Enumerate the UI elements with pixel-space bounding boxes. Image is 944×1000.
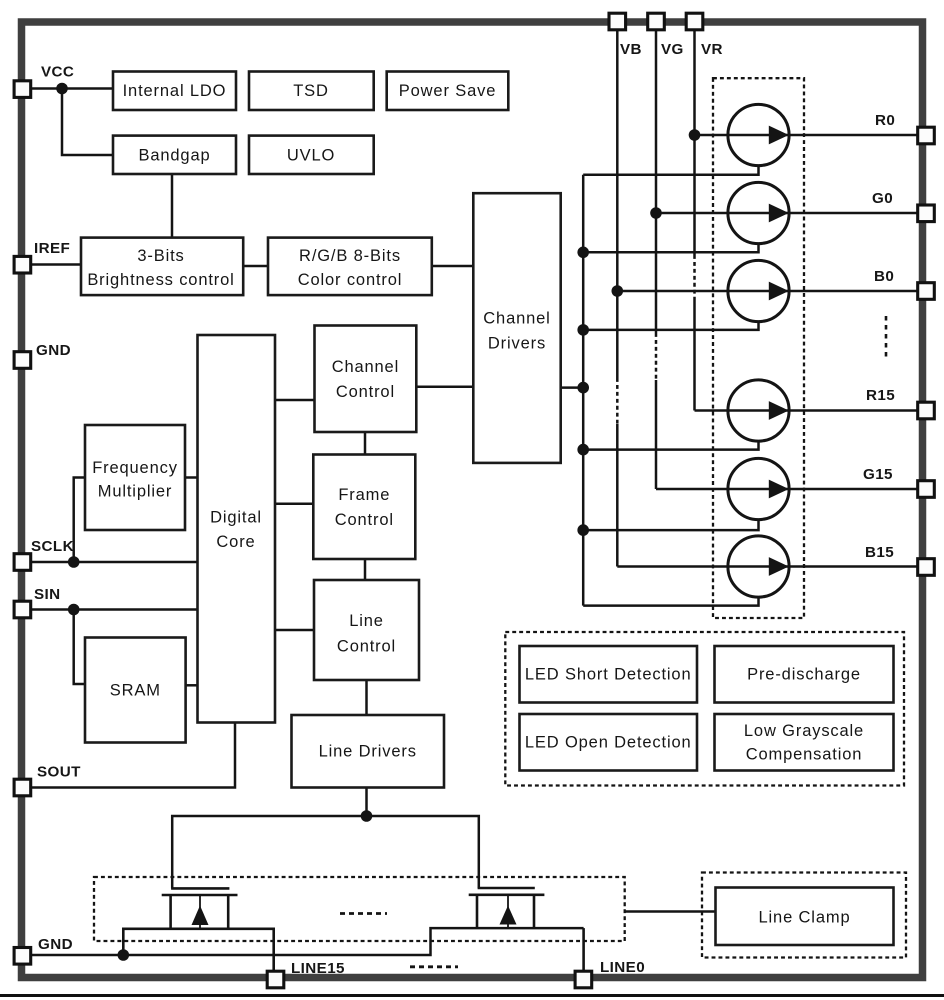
svg-text:LINE0: LINE0 [600, 959, 645, 976]
svg-text:TSD: TSD [293, 82, 329, 100]
svg-text:VR: VR [701, 41, 723, 58]
svg-text:G0: G0 [872, 190, 893, 207]
svg-text:Core: Core [216, 533, 255, 551]
svg-text:LINE15: LINE15 [291, 960, 345, 977]
svg-text:Drivers: Drivers [488, 335, 546, 353]
svg-text:Bandgap: Bandgap [138, 147, 210, 165]
svg-text:R/G/B 8-Bits: R/G/B 8-Bits [299, 247, 401, 265]
svg-text:Internal LDO: Internal LDO [123, 82, 227, 100]
svg-text:GND: GND [38, 936, 73, 953]
svg-text:SOUT: SOUT [37, 764, 81, 781]
svg-text:Line: Line [349, 612, 384, 630]
svg-text:G15: G15 [863, 466, 893, 483]
svg-text:Pre-discharge: Pre-discharge [747, 666, 861, 684]
svg-text:SIN: SIN [34, 586, 61, 603]
svg-text:Frequency: Frequency [92, 459, 178, 477]
svg-text:Power Save: Power Save [399, 82, 496, 100]
svg-text:VB: VB [620, 41, 642, 58]
svg-text:Channel: Channel [483, 310, 550, 328]
svg-text:GND: GND [36, 342, 71, 359]
svg-text:Channel: Channel [332, 358, 399, 376]
svg-text:LED Open Detection: LED Open Detection [525, 734, 692, 752]
svg-text:Brightness control: Brightness control [87, 271, 234, 289]
svg-text:3-Bits: 3-Bits [137, 247, 184, 265]
svg-text:Frame: Frame [338, 486, 390, 504]
svg-text:Control: Control [336, 383, 395, 401]
svg-text:LED Short Detection: LED Short Detection [525, 666, 692, 684]
svg-text:SCLK: SCLK [31, 538, 74, 555]
svg-text:UVLO: UVLO [287, 147, 335, 165]
svg-text:Line Drivers: Line Drivers [319, 743, 417, 761]
svg-text:IREF: IREF [34, 240, 70, 257]
svg-text:B15: B15 [865, 544, 894, 561]
svg-text:Low Grayscale: Low Grayscale [744, 722, 864, 740]
svg-text:R0: R0 [875, 112, 895, 129]
svg-text:B0: B0 [874, 268, 894, 285]
svg-text:Color control: Color control [298, 271, 403, 289]
svg-text:Multiplier: Multiplier [98, 483, 173, 501]
svg-text:R15: R15 [866, 387, 895, 404]
svg-text:Control: Control [337, 638, 396, 656]
svg-text:SRAM: SRAM [110, 682, 161, 700]
svg-text:Line Clamp: Line Clamp [759, 909, 851, 927]
svg-text:Control: Control [335, 511, 394, 529]
svg-text:Compensation: Compensation [746, 746, 863, 764]
svg-text:VG: VG [661, 41, 684, 58]
svg-text:Digital: Digital [210, 509, 262, 527]
svg-text:VCC: VCC [41, 64, 74, 81]
